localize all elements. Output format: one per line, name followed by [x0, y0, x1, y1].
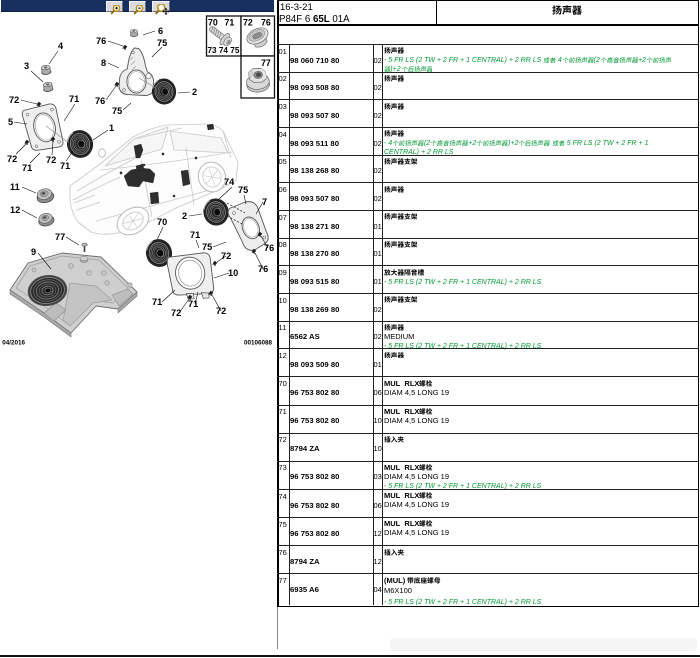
- svg-text:04/2016: 04/2016: [2, 340, 25, 347]
- svg-text:8: 8: [101, 58, 106, 68]
- svg-text:1: 1: [109, 123, 114, 133]
- svg-text:76: 76: [261, 18, 271, 28]
- svg-text:11: 11: [10, 182, 20, 192]
- svg-text:70: 70: [157, 217, 167, 227]
- svg-text:75: 75: [202, 242, 212, 252]
- svg-text:76: 76: [264, 243, 274, 253]
- svg-text:71: 71: [190, 230, 200, 240]
- svg-text:72: 72: [9, 95, 19, 105]
- svg-text:77: 77: [55, 232, 65, 242]
- svg-text:72: 72: [243, 18, 253, 28]
- svg-text:76: 76: [96, 36, 106, 46]
- svg-text:71: 71: [69, 94, 79, 104]
- svg-text:72: 72: [46, 155, 56, 165]
- svg-text:2: 2: [192, 87, 197, 97]
- svg-text:4: 4: [58, 41, 64, 51]
- svg-text:72: 72: [221, 251, 231, 261]
- svg-text:71: 71: [188, 299, 198, 309]
- svg-text:2: 2: [182, 211, 187, 221]
- svg-text:9: 9: [31, 247, 36, 257]
- svg-text:72: 72: [171, 308, 181, 318]
- svg-text:71: 71: [225, 18, 235, 28]
- svg-text:70: 70: [208, 18, 218, 28]
- svg-text:75: 75: [112, 106, 122, 116]
- svg-text:71: 71: [152, 297, 162, 307]
- svg-text:12: 12: [10, 205, 20, 215]
- svg-text:71: 71: [60, 161, 70, 171]
- svg-text:75: 75: [238, 185, 248, 195]
- svg-text:76: 76: [258, 264, 268, 274]
- svg-text:3: 3: [24, 61, 29, 71]
- svg-text:71: 71: [22, 163, 32, 173]
- svg-text:72: 72: [7, 154, 17, 164]
- svg-text:74: 74: [224, 177, 235, 187]
- svg-text:76: 76: [95, 96, 105, 106]
- svg-text:72: 72: [216, 306, 226, 316]
- svg-text:00106088: 00106088: [244, 340, 273, 347]
- svg-text:7: 7: [262, 197, 267, 207]
- svg-text:73 74 75: 73 74 75: [208, 46, 240, 55]
- svg-text:5: 5: [8, 117, 13, 127]
- svg-text:77: 77: [261, 58, 271, 68]
- svg-text:10: 10: [228, 268, 238, 278]
- svg-text:6: 6: [158, 26, 163, 36]
- svg-text:75: 75: [157, 38, 167, 48]
